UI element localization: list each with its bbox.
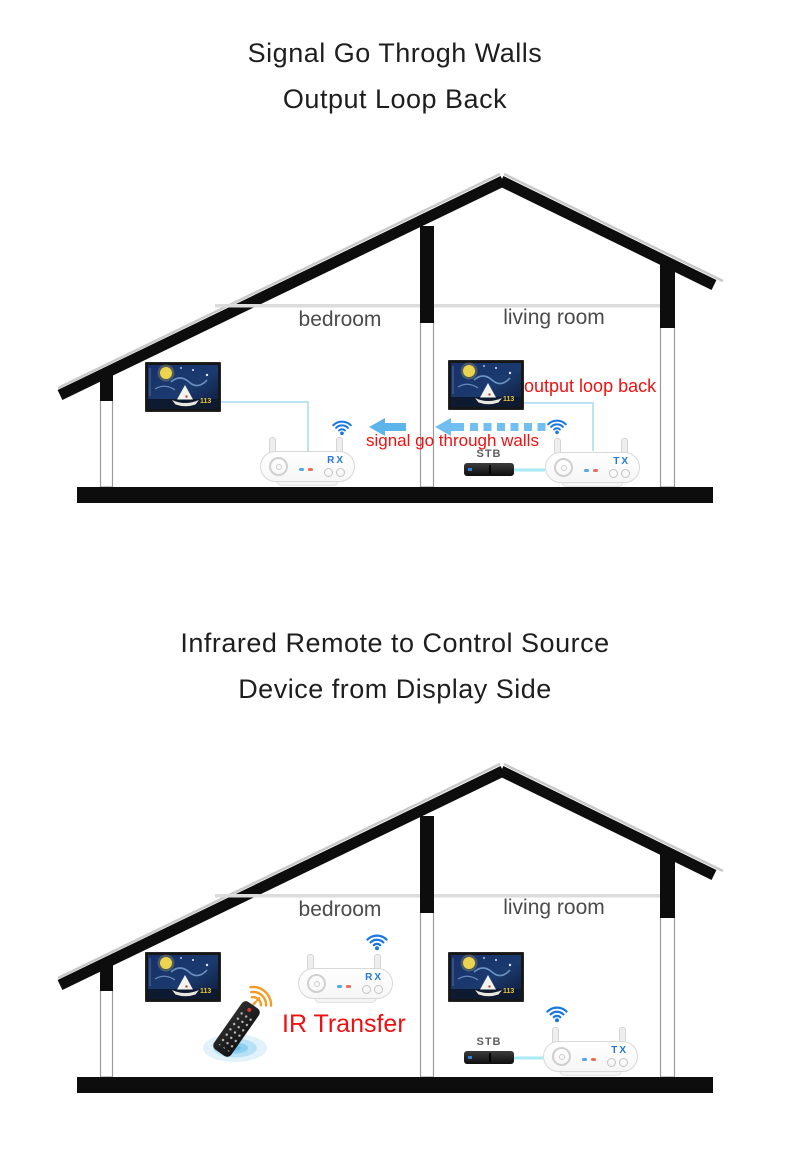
connector-port	[619, 1058, 628, 1067]
starry-night-screen: 113	[145, 362, 221, 412]
tx-label: TX	[611, 1045, 628, 1056]
wall-right-lower	[661, 917, 675, 1077]
room-label-living-1: living room	[454, 306, 654, 330]
column-left-upper	[100, 963, 113, 991]
section2-title-line2: Device from Display Side	[0, 666, 790, 712]
wall-right-lower	[661, 327, 675, 487]
section2-title-line1: Infrared Remote to Control Source	[0, 620, 790, 666]
column-left-upper	[100, 373, 113, 401]
wifi-icon	[331, 419, 353, 436]
room-label-bedroom-2: bedroom	[240, 898, 440, 922]
power-ring-icon	[552, 1047, 571, 1066]
page: Signal Go Throgh Walls Output Loop Back …	[0, 0, 790, 1151]
power-ring-icon	[269, 457, 288, 476]
column-left-lower	[101, 400, 113, 487]
ceiling-line-bedroom	[215, 304, 420, 308]
rx-receiver-2: RX	[298, 954, 393, 1006]
starry-night-screen: 113	[448, 360, 524, 410]
starry-night-screen: 113	[145, 952, 221, 1002]
power-ring-icon	[554, 458, 573, 477]
wall-middle-lower	[421, 912, 434, 1077]
tv-bedroom-2: 113	[145, 952, 221, 1002]
led-red-icon	[346, 985, 351, 988]
led-blue-icon	[299, 468, 304, 471]
connector-port	[374, 985, 383, 994]
wall-right-upper	[660, 854, 675, 918]
stb-label-2: STB	[464, 1036, 514, 1048]
roof-left	[60, 181, 503, 395]
tv-living-1: 113	[448, 360, 524, 410]
column-left-lower	[101, 990, 113, 1077]
led-blue-icon	[337, 985, 342, 988]
starry-night-screen: 113	[448, 952, 524, 1002]
roof-left	[60, 771, 503, 985]
wall-right-upper	[660, 264, 675, 328]
led-red-icon	[308, 468, 313, 471]
tv-badge: 113	[200, 398, 211, 405]
tv-badge: 113	[200, 988, 211, 995]
connector-port	[607, 1058, 616, 1067]
connector-port	[336, 468, 345, 477]
section1-title-line1: Signal Go Throgh Walls	[0, 30, 790, 76]
rx-receiver-1: RX	[260, 437, 355, 489]
connector-port	[621, 469, 630, 478]
wifi-icon	[546, 418, 568, 435]
room-label-living-2: living room	[454, 896, 654, 920]
connector-port	[324, 468, 333, 477]
tx-transmitter-1: TX	[545, 438, 640, 490]
roof-right	[501, 771, 714, 875]
stb-box-1	[464, 463, 514, 476]
connector-port	[609, 469, 618, 478]
tv-living-2: 113	[448, 952, 524, 1002]
room-label-bedroom-1: bedroom	[240, 308, 440, 332]
led-red-icon	[591, 1058, 596, 1061]
section1-title: Signal Go Throgh Walls Output Loop Back	[0, 30, 790, 122]
device-body: RX	[260, 451, 355, 482]
wifi-icon	[545, 1005, 569, 1023]
led-red-icon	[593, 469, 598, 472]
tv-badge: 113	[503, 988, 514, 995]
roof-right-highlight	[504, 764, 723, 871]
roof-right	[501, 181, 714, 285]
output-loop-back-label: output loop back	[524, 376, 656, 397]
floor	[77, 1077, 713, 1093]
rx-label: RX	[365, 972, 383, 983]
wall-middle-lower	[421, 322, 434, 487]
section1-title-line2: Output Loop Back	[0, 76, 790, 122]
tv-badge: 113	[503, 396, 514, 403]
device-body: TX	[543, 1041, 638, 1072]
ir-transfer-label: IR Transfer	[282, 1010, 406, 1039]
device-body: TX	[545, 452, 640, 483]
section2-title: Infrared Remote to Control Source Device…	[0, 620, 790, 712]
led-blue-icon	[582, 1058, 587, 1061]
wifi-icon	[365, 933, 389, 951]
tv-bedroom-1: 113	[145, 362, 221, 412]
tx-label: TX	[613, 456, 630, 467]
rx-label: RX	[327, 455, 345, 466]
roof-right-highlight	[504, 174, 723, 281]
ceiling-line-bedroom	[215, 894, 420, 898]
tx-transmitter-2: TX	[543, 1027, 638, 1079]
led-blue-icon	[584, 469, 589, 472]
signal-go-through-walls-label: signal go through walls	[366, 431, 539, 451]
device-body: RX	[298, 968, 393, 999]
stb-box-2	[464, 1051, 514, 1064]
connector-port	[362, 985, 371, 994]
